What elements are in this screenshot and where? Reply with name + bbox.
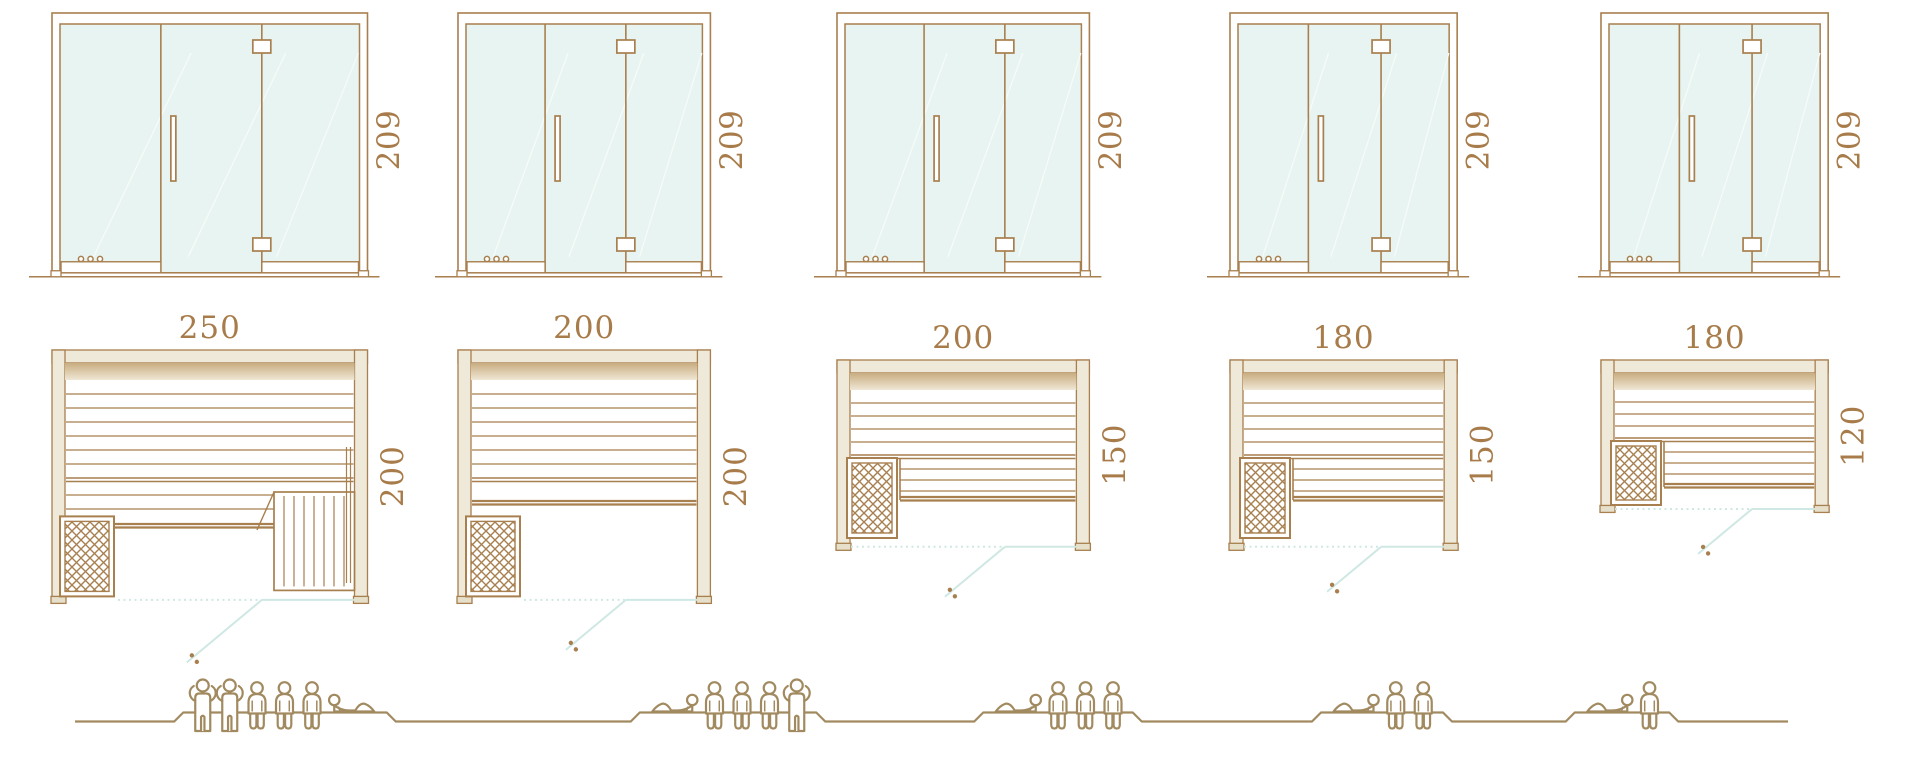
back-wall xyxy=(52,350,368,363)
head xyxy=(687,695,697,705)
figure-standing xyxy=(217,680,243,732)
right-post-foot xyxy=(1080,271,1090,277)
glass-panels xyxy=(60,24,360,273)
figure-lying xyxy=(1587,695,1632,712)
depth-dimension-label: 150 xyxy=(1465,424,1501,486)
figure-sitting xyxy=(304,682,321,728)
right-wall-foot xyxy=(696,596,711,603)
vent-hole-icon xyxy=(882,256,887,261)
door-handle xyxy=(1689,116,1694,181)
ground-line xyxy=(75,713,1788,722)
depth-dimension-label: 200 xyxy=(375,445,411,507)
step-bench xyxy=(257,447,355,590)
depth-dimension-label: 120 xyxy=(1836,405,1872,467)
head xyxy=(251,682,263,694)
open-door-line xyxy=(1698,509,1752,554)
heater xyxy=(847,458,897,538)
sauna-180x150: 209180150 xyxy=(1207,13,1501,729)
backrest-band xyxy=(65,363,355,380)
left-panel-sill xyxy=(467,262,545,273)
right-panel-sill xyxy=(1381,262,1448,273)
figure-lying xyxy=(329,695,374,712)
door-swing xyxy=(524,600,697,652)
door-handle-mark-icon xyxy=(574,647,578,651)
floor-plan: 200200 xyxy=(457,310,754,652)
backrest-band xyxy=(471,363,697,380)
open-door-line xyxy=(566,600,626,650)
left-post-foot xyxy=(836,271,846,277)
door-hinge xyxy=(1743,238,1761,251)
sauna-250x200: 209250200 xyxy=(29,13,411,731)
door-handle-mark-icon xyxy=(1701,545,1705,549)
head xyxy=(1052,682,1064,694)
height-dimension-label: 209 xyxy=(371,110,407,171)
figure-sitting xyxy=(1415,682,1432,728)
height-dimension-label: 209 xyxy=(714,110,750,171)
head xyxy=(329,695,339,705)
head xyxy=(279,682,291,694)
figure-sitting xyxy=(249,682,266,728)
door-handle xyxy=(934,116,939,181)
capacity-group xyxy=(190,680,374,732)
depth-dimension-label: 150 xyxy=(1097,424,1133,486)
left-wall-foot xyxy=(457,596,472,603)
width-dimension-label: 180 xyxy=(1312,320,1374,356)
left-panel-sill xyxy=(1239,262,1308,273)
floor-plan: 180150 xyxy=(1229,320,1501,593)
head xyxy=(197,680,209,692)
backrest-band xyxy=(1243,373,1444,390)
door-handle-mark-icon xyxy=(1706,551,1710,555)
left-wall-foot xyxy=(1600,505,1615,512)
back-wall xyxy=(1230,360,1457,373)
vent-hole-icon xyxy=(1627,256,1632,261)
right-wall xyxy=(355,350,368,602)
left-post-foot xyxy=(1600,271,1610,277)
figure-lying xyxy=(652,695,697,712)
door-swing xyxy=(1244,547,1444,594)
door-hinge xyxy=(253,40,271,53)
door-hinge xyxy=(617,40,635,53)
door-handle-mark-icon xyxy=(195,660,199,664)
vent-hole-icon xyxy=(1275,256,1280,261)
left-wall-foot xyxy=(836,543,851,550)
right-post-foot xyxy=(701,271,711,277)
back-wall xyxy=(1601,360,1828,373)
vent-hole-icon xyxy=(78,256,83,261)
figure-standing xyxy=(784,680,810,732)
left-panel-sill xyxy=(1610,262,1679,273)
head xyxy=(736,682,748,694)
front-elevation: 209 xyxy=(1578,13,1868,277)
door-hinge xyxy=(996,40,1014,53)
figure-sitting xyxy=(1641,682,1658,728)
figure-sitting xyxy=(1077,682,1094,728)
front-elevation: 209 xyxy=(29,13,407,277)
width-dimension-label: 200 xyxy=(553,310,615,346)
sauna-200x200: 209200200 xyxy=(435,13,810,731)
sauna-180x120: 209180120 xyxy=(1578,13,1872,729)
figure-standing xyxy=(190,680,216,732)
right-post-foot xyxy=(1819,271,1829,277)
head xyxy=(791,680,803,692)
backrest-band xyxy=(1614,373,1815,390)
right-panel-sill xyxy=(1752,262,1819,273)
backrest-band xyxy=(850,373,1076,390)
height-dimension-label: 209 xyxy=(1461,110,1497,171)
capacity-group xyxy=(1334,682,1432,728)
head xyxy=(1417,682,1429,694)
left-post-foot xyxy=(1229,271,1239,277)
depth-dimension-label: 200 xyxy=(718,445,754,507)
height-dimension-label: 209 xyxy=(1093,110,1129,171)
floor-plan: 250200 xyxy=(51,310,411,664)
heater xyxy=(1240,458,1290,538)
door-handle xyxy=(171,116,176,181)
left-wall-foot xyxy=(51,596,66,603)
door-hinge xyxy=(1372,238,1390,251)
vent-hole-icon xyxy=(1637,256,1642,261)
right-post-foot xyxy=(1448,271,1458,277)
right-panel-sill xyxy=(626,262,702,273)
head xyxy=(1368,695,1378,705)
capacity-group xyxy=(1587,682,1658,728)
right-wall-foot xyxy=(1075,543,1090,550)
back-wall xyxy=(458,350,710,363)
vent-hole-icon xyxy=(863,256,868,261)
vent-hole-icon xyxy=(88,256,93,261)
front-elevation: 209 xyxy=(814,13,1129,277)
head xyxy=(1390,682,1402,694)
figure-lying xyxy=(1334,695,1379,712)
door-handle-mark-icon xyxy=(1330,583,1334,587)
open-door-line xyxy=(1327,547,1381,592)
right-wall xyxy=(697,350,710,602)
sauna-200x150: 209200150 xyxy=(814,13,1133,729)
figure-sitting xyxy=(734,682,751,728)
bench-planks xyxy=(472,394,696,505)
head xyxy=(1622,695,1632,705)
door-handle-mark-icon xyxy=(1335,589,1339,593)
left-panel-sill xyxy=(846,262,924,273)
head xyxy=(1080,682,1092,694)
figure-sitting xyxy=(1050,682,1067,728)
head xyxy=(709,682,721,694)
front-elevation: 209 xyxy=(1207,13,1497,277)
figure-sitting xyxy=(761,682,778,728)
vent-hole-icon xyxy=(484,256,489,261)
head xyxy=(1644,682,1656,694)
height-dimension-label: 209 xyxy=(1832,110,1868,171)
door-handle-mark-icon xyxy=(953,594,957,598)
figure-sitting xyxy=(706,682,723,728)
vent-hole-icon xyxy=(1266,256,1271,261)
vent-hole-icon xyxy=(494,256,499,261)
vent-hole-icon xyxy=(873,256,878,261)
front-elevation: 209 xyxy=(435,13,750,277)
left-wall-foot xyxy=(1229,543,1244,550)
head xyxy=(306,682,318,694)
heater xyxy=(1611,441,1661,505)
door-hinge xyxy=(1372,40,1390,53)
figure-sitting xyxy=(276,682,293,728)
left-post-foot xyxy=(457,271,467,277)
sauna-lineup-diagram: 2092502002092002002092001502091801502091… xyxy=(0,0,1920,764)
door-hinge xyxy=(253,238,271,251)
width-dimension-label: 250 xyxy=(179,310,241,346)
door-handle-mark-icon xyxy=(569,641,573,645)
vent-hole-icon xyxy=(503,256,508,261)
right-wall-foot xyxy=(1814,505,1829,512)
vent-hole-icon xyxy=(97,256,102,261)
door-handle xyxy=(555,116,560,181)
floor-plan: 200150 xyxy=(836,320,1133,598)
figure-lying xyxy=(996,695,1041,712)
right-wall xyxy=(1076,360,1089,549)
door-swing xyxy=(118,600,355,664)
back-wall xyxy=(837,360,1089,373)
head xyxy=(1031,695,1041,705)
right-wall-foot xyxy=(1443,543,1458,550)
heater xyxy=(60,516,114,596)
right-wall-foot xyxy=(354,596,369,603)
head xyxy=(1107,682,1119,694)
width-dimension-label: 180 xyxy=(1683,320,1745,356)
right-wall xyxy=(1444,360,1457,549)
figure-sitting xyxy=(1105,682,1122,728)
capacity-group xyxy=(652,680,809,732)
door-hinge xyxy=(617,238,635,251)
heater xyxy=(466,516,520,596)
door-swing xyxy=(1615,509,1815,556)
head xyxy=(764,682,776,694)
door-swing xyxy=(851,547,1076,599)
floor-plan: 180120 xyxy=(1600,320,1872,556)
right-wall xyxy=(1815,360,1828,511)
door-hinge xyxy=(996,238,1014,251)
open-door-line xyxy=(945,547,1005,597)
diagram-canvas: 2092502002092002002092001502091801502091… xyxy=(0,0,1920,764)
right-post-foot xyxy=(359,271,369,277)
door-handle xyxy=(1318,116,1323,181)
right-panel-sill xyxy=(262,262,359,273)
left-post-foot xyxy=(51,271,61,277)
figure-sitting xyxy=(1387,682,1404,728)
width-dimension-label: 200 xyxy=(932,320,994,356)
capacity-ground-line xyxy=(75,713,1788,722)
head xyxy=(224,680,236,692)
open-door-line xyxy=(187,600,262,662)
vent-hole-icon xyxy=(1646,256,1651,261)
door-hinge xyxy=(1743,40,1761,53)
left-panel-sill xyxy=(61,262,161,273)
capacity-group xyxy=(996,682,1122,728)
right-panel-sill xyxy=(1005,262,1081,273)
door-handle-mark-icon xyxy=(190,653,194,657)
vent-hole-icon xyxy=(1256,256,1261,261)
door-handle-mark-icon xyxy=(948,588,952,592)
